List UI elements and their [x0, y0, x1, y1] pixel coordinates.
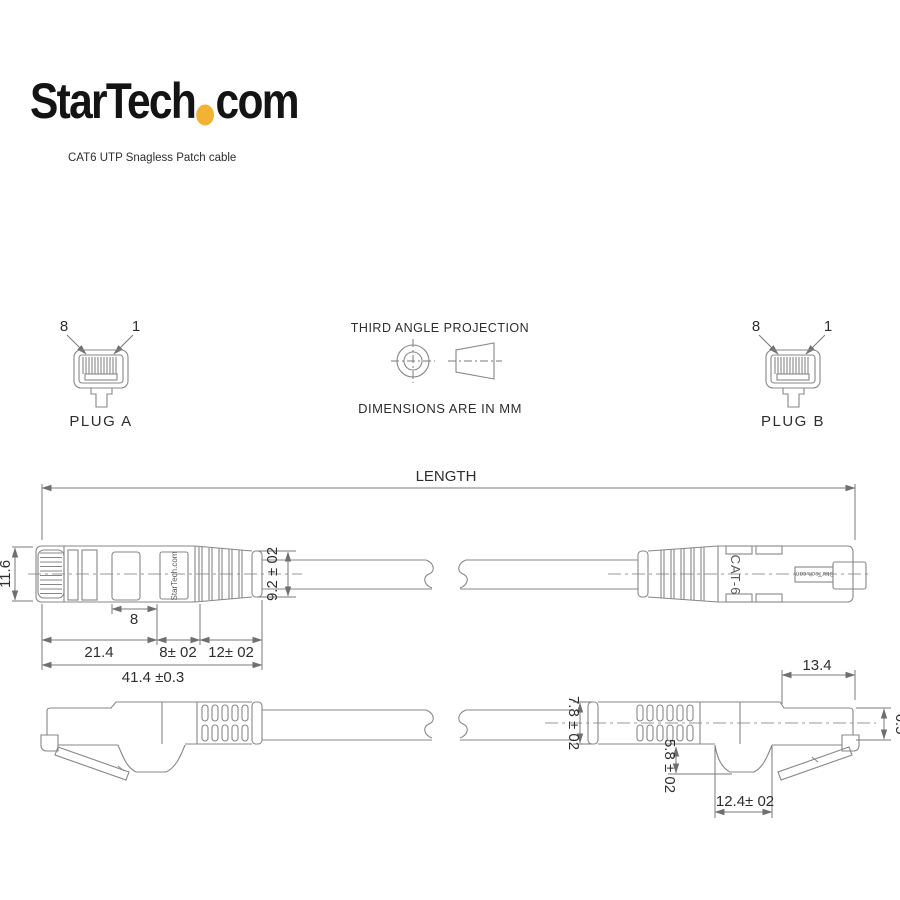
- connector-a-brand-label: StarTech.com: [170, 551, 179, 600]
- mid-dim-text: 8± 02: [159, 644, 196, 661]
- plug-b-pin1-label: 1: [824, 318, 832, 335]
- connector-a-latch: [55, 747, 129, 780]
- body-dim-text: 21.4: [84, 644, 113, 661]
- cable-side-break-left: [425, 710, 434, 738]
- plug-b-pin8-label: 8: [752, 318, 760, 335]
- hump-depth-dim-text: 5.8 ± 02: [661, 739, 678, 793]
- plug-b-pin1-leader: [806, 335, 825, 354]
- cable-side-break-right: [459, 710, 468, 738]
- connector-a-snagless-hump: [118, 745, 185, 772]
- plug-a-caption: PLUG A: [69, 413, 132, 430]
- units-note: DIMENSIONS ARE IN MM: [358, 401, 522, 416]
- connector-b-latch-tab: [833, 562, 866, 589]
- plug-b-pins: [775, 357, 808, 374]
- plug-b-view: 8 1 PLUG B: [752, 318, 832, 430]
- side-view-dimensions: 7.8 ± 02 5.8 ± 02 12.4± 02 13.4 6.5: [565, 657, 900, 818]
- length-dimension: LENGTH: [42, 468, 855, 540]
- boot-end-dim-text: 9.2 ± 02: [264, 547, 281, 601]
- projection-title: THIRD ANGLE PROJECTION: [351, 321, 529, 335]
- cable-top: [262, 560, 638, 589]
- connector-a-side-top: [47, 702, 252, 735]
- connector-b-notch-top-2: [756, 546, 782, 554]
- connector-b-notch-top-1: [726, 546, 752, 554]
- plug-a-cable-slot: [85, 374, 117, 380]
- top-view: StarTech.com CAT-6 StarTech.com: [0, 546, 868, 686]
- cable-top-break-left: [425, 560, 434, 588]
- connector-a-side-boot-ribs: [202, 705, 248, 741]
- boot-dim-text: 12± 02: [208, 644, 254, 661]
- length-label: LENGTH: [416, 468, 477, 485]
- connector-b-cat-label: CAT-6: [728, 555, 743, 596]
- cable-side-lines: [262, 710, 574, 740]
- connector-b-brand-label: StarTech.com: [794, 570, 834, 577]
- connector-b-notch-bottom-2: [756, 594, 782, 602]
- connector-a-side: [41, 702, 262, 780]
- connector-a-contacts: [40, 553, 62, 594]
- tip-height-dim-text: 6.5: [892, 714, 900, 735]
- cable-side: [262, 710, 574, 740]
- cable-top-break-right: [459, 560, 468, 588]
- plug-a-view: 8 1 PLUG A: [60, 318, 140, 430]
- plug-b-caption: PLUG B: [761, 413, 825, 430]
- plug-a-pin1-label: 1: [132, 318, 140, 335]
- technical-drawing: 8 1 PLUG A THIRD ANGLE PROJECTION DIMENS…: [0, 0, 900, 900]
- window-dim-text: 8: [130, 611, 138, 628]
- plug-a-pin1-leader: [114, 335, 133, 354]
- plug-a-pin8-label: 8: [60, 318, 68, 335]
- connector-a-window: [112, 552, 140, 600]
- boot-od-dim-text: 7.8 ± 02: [565, 696, 582, 750]
- connector-b-latch: [778, 747, 852, 780]
- connector-b-side: [588, 702, 859, 780]
- plug-b-latch-tab: [783, 388, 804, 407]
- tip-length-dim-text: 13.4: [802, 657, 831, 674]
- plug-a-pins: [83, 357, 116, 374]
- connector-a-side-boot-end: [252, 702, 262, 744]
- hump-width-dim-text: 12.4± 02: [716, 793, 774, 810]
- connector-b-side-top: [598, 702, 853, 735]
- projection-symbol: THIRD ANGLE PROJECTION DIMENSIONS ARE IN…: [351, 321, 529, 416]
- plug-b-cable-slot: [777, 374, 809, 380]
- plug-a-latch-tab: [91, 388, 112, 407]
- connector-a-rib-2: [82, 550, 97, 600]
- connector-b-snagless-hump: [715, 745, 772, 772]
- overall-dim-text: 41.4 ±0.3: [122, 669, 184, 686]
- height-dim-text: 11.6: [0, 560, 14, 588]
- cable-top-lines: [262, 560, 638, 589]
- connector-a-rib-1: [68, 550, 78, 600]
- connector-a-latch-base: [41, 735, 58, 751]
